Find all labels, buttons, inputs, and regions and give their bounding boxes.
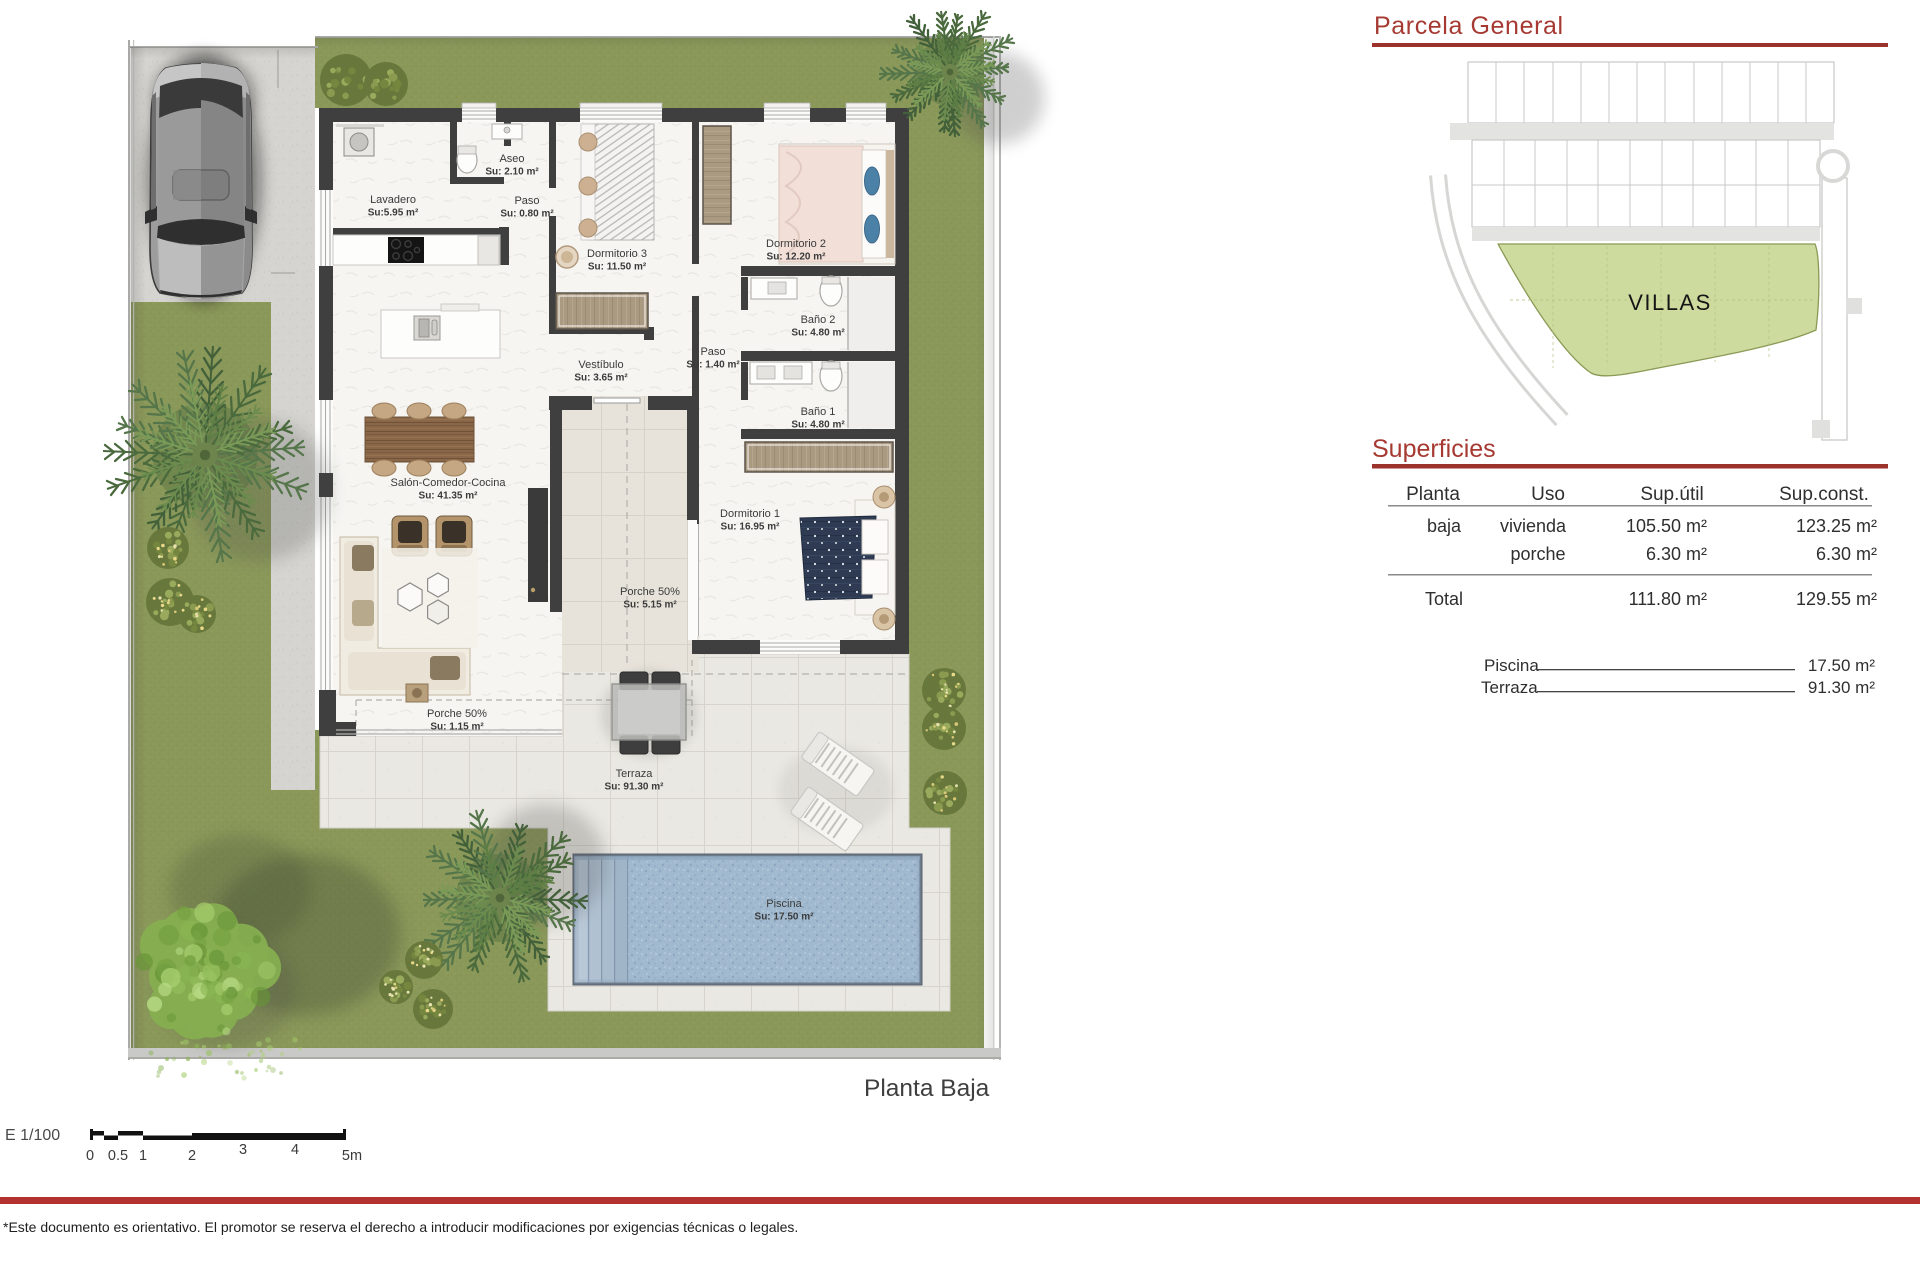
svg-text:Baño 2: Baño 2 [801,314,836,326]
svg-text:Piscina: Piscina [1484,656,1539,675]
svg-text:Vestíbulo: Vestíbulo [578,359,623,371]
svg-text:Dormitorio 1: Dormitorio 1 [720,508,780,520]
svg-text:Sup.const.: Sup.const. [1779,484,1869,505]
svg-text:Su: 17.50 m²: Su: 17.50 m² [755,912,815,923]
svg-text:Aseo: Aseo [499,153,524,165]
svg-text:Planta Baja: Planta Baja [864,1075,990,1102]
svg-text:Terraza: Terraza [616,768,654,780]
svg-text:baja: baja [1427,516,1462,536]
svg-text:Uso: Uso [1531,484,1565,505]
svg-text:Su:5.95 m²: Su:5.95 m² [368,208,419,219]
svg-text:Paso: Paso [514,195,539,207]
svg-text:Su: 12.20 m²: Su: 12.20 m² [767,252,827,263]
svg-text:Sup.útil: Sup.útil [1640,484,1703,505]
svg-text:Paso: Paso [700,346,725,358]
svg-text:Su: 2.10 m²: Su: 2.10 m² [485,167,539,178]
svg-text:105.50 m²: 105.50 m² [1626,516,1707,536]
svg-text:vivienda: vivienda [1500,516,1567,536]
svg-text:porche: porche [1510,544,1565,564]
svg-text:Terraza: Terraza [1481,678,1538,697]
svg-text:Su: 4.80 m²: Su: 4.80 m² [791,328,845,339]
svg-text:Su: 1.15 m²: Su: 1.15 m² [430,722,484,733]
svg-text:17.50 m²: 17.50 m² [1808,656,1875,675]
svg-text:Porche 50%: Porche 50% [427,708,487,720]
svg-text:1: 1 [139,1148,147,1164]
svg-text:Su: 0.80 m²: Su: 0.80 m² [500,209,554,220]
svg-text:Lavadero: Lavadero [370,194,416,206]
svg-text:91.30 m²: 91.30 m² [1808,678,1875,697]
svg-text:Su: 41.35 m²: Su: 41.35 m² [419,491,479,502]
svg-text:5m: 5m [342,1148,362,1164]
svg-text:111.80 m²: 111.80 m² [1629,589,1707,609]
svg-text:Parcela General: Parcela General [1374,12,1564,40]
svg-text:4: 4 [291,1142,299,1158]
svg-text:Dormitorio 2: Dormitorio 2 [766,238,826,250]
svg-text:3: 3 [239,1142,247,1158]
svg-text:Su: 3.65 m²: Su: 3.65 m² [574,373,628,384]
svg-text:Salón-Comedor-Cocina: Salón-Comedor-Cocina [391,477,507,489]
svg-text:Total: Total [1425,589,1463,609]
svg-text:Su: 11.50 m²: Su: 11.50 m² [588,262,647,273]
svg-text:Superficies: Superficies [1372,435,1496,463]
svg-text:Dormitorio 3: Dormitorio 3 [587,248,647,260]
svg-text:Piscina: Piscina [766,898,802,910]
svg-text:*Este documento es orientativo: *Este documento es orientativo. El promo… [3,1219,798,1235]
svg-text:Su: 5.15 m²: Su: 5.15 m² [623,600,677,611]
svg-text:Planta: Planta [1406,484,1460,505]
svg-text:Porche 50%: Porche 50% [620,586,680,598]
svg-text:0: 0 [86,1148,94,1164]
svg-text:6.30 m²: 6.30 m² [1646,544,1707,564]
svg-text:Su: 91.30 m²: Su: 91.30 m² [605,782,665,793]
svg-text:2: 2 [188,1148,196,1164]
svg-text:0.5: 0.5 [108,1148,128,1164]
svg-text:Baño 1: Baño 1 [801,406,836,418]
svg-text:123.25 m²: 123.25 m² [1796,516,1877,536]
svg-text:129.55 m²: 129.55 m² [1796,589,1877,609]
svg-text:E 1/100: E 1/100 [5,1127,60,1144]
svg-text:6.30 m²: 6.30 m² [1816,544,1877,564]
svg-text:Su: 1.40 m²: Su: 1.40 m² [686,360,740,371]
svg-text:Su: 4.80 m²: Su: 4.80 m² [791,420,845,431]
svg-text:Su: 16.95 m²: Su: 16.95 m² [721,522,781,533]
svg-text:VILLAS: VILLAS [1628,290,1712,315]
